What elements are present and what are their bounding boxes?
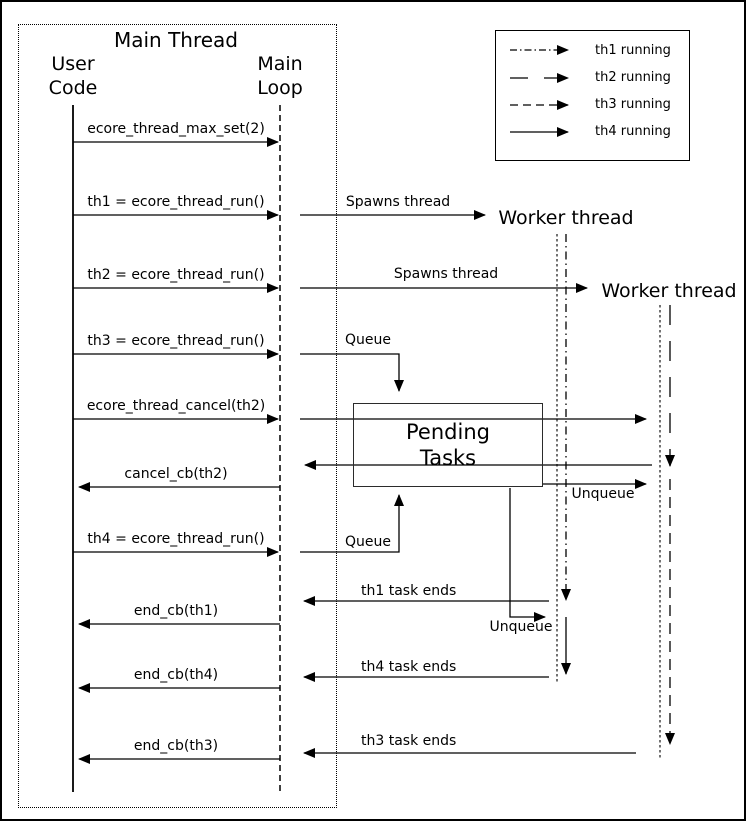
message-end-cb-th3-label: end_cb(th3) xyxy=(74,738,278,755)
message-th3-run-label: th3 = ecore_thread_run() xyxy=(74,333,278,350)
message-th1-task-ends-label: th1 task ends xyxy=(361,583,456,600)
legend-th2-label: th2 running xyxy=(595,71,671,85)
message-th2-run-label: th2 = ecore_thread_run() xyxy=(74,267,278,284)
legend-th1-label: th1 running xyxy=(595,44,671,58)
message-th4-run-label: th4 = ecore_thread_run() xyxy=(74,531,278,548)
message-end-cb-th4-label: end_cb(th4) xyxy=(74,667,278,684)
main-thread-title: Main Thread xyxy=(81,28,271,52)
message-cancel-cb-label: cancel_cb(th2) xyxy=(74,466,278,483)
message-unqueue-th4-label: Unqueue xyxy=(487,619,555,636)
legend-th4-label: th4 running xyxy=(595,125,671,139)
worker-thread-2-label: Worker thread xyxy=(599,279,739,303)
lifeline-user-code-label: User Code xyxy=(41,52,105,100)
arrow-queue-th3 xyxy=(300,354,399,391)
message-th4-task-ends-label: th4 task ends xyxy=(361,659,456,676)
message-queue-th4-label: Queue xyxy=(341,534,395,551)
message-cancel-th2-label: ecore_thread_cancel(th2) xyxy=(74,398,278,415)
pending-tasks-box: Pending Tasks xyxy=(353,403,543,487)
message-max-set-label: ecore_thread_max_set(2) xyxy=(74,121,278,138)
pending-tasks-label: Pending Tasks xyxy=(388,419,508,471)
message-end-cb-th1-label: end_cb(th1) xyxy=(74,603,278,620)
message-unqueue-th3-label: Unqueue xyxy=(569,486,637,503)
lifeline-main-loop-label: Main Loop xyxy=(247,52,313,100)
message-th1-run-label: th1 = ecore_thread_run() xyxy=(74,194,278,211)
message-spawns-thread-2-label: Spawns thread xyxy=(382,266,510,283)
message-spawns-thread-1-label: Spawns thread xyxy=(334,194,462,211)
arrow-unqueue-th4 xyxy=(510,488,545,617)
worker-thread-1-label: Worker thread xyxy=(496,206,636,230)
message-th3-task-ends-label: th3 task ends xyxy=(361,733,456,750)
message-queue-th3-label: Queue xyxy=(341,332,395,349)
sequence-diagram: Main Thread User Code Main Loop Worker t… xyxy=(0,0,746,821)
legend-th3-label: th3 running xyxy=(595,98,671,112)
